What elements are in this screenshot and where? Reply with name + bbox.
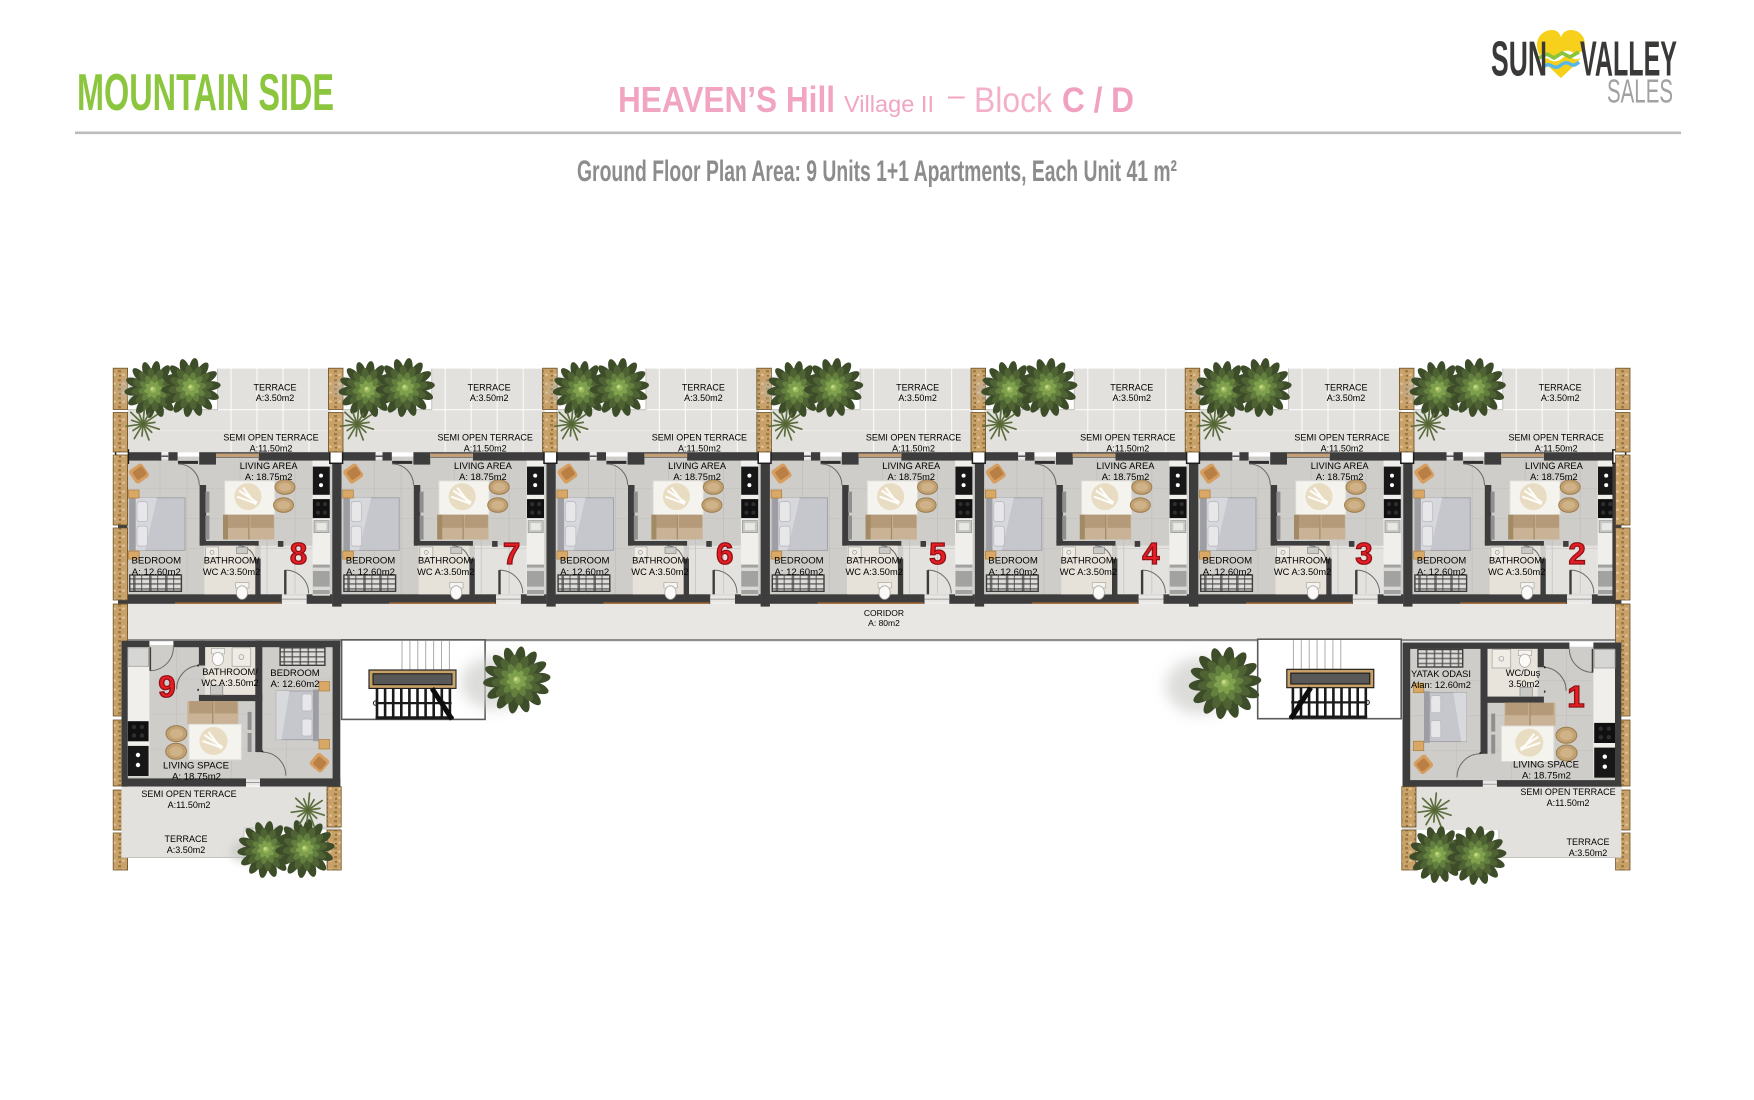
svg-text:–: – [948, 79, 965, 112]
svg-text:8: 8 [290, 536, 307, 571]
svg-text:1: 1 [1567, 679, 1584, 714]
svg-text:Village II: Village II [844, 91, 934, 117]
svg-text:Ground Floor Plan Area: 9 Unit: Ground Floor Plan Area: 9 Units 1+1 Apar… [577, 155, 1177, 188]
svg-text:SALES: SALES [1607, 73, 1673, 110]
svg-text:A:11.50m2: A:11.50m2 [1547, 798, 1590, 808]
svg-text:TERRACE: TERRACE [1566, 837, 1609, 847]
svg-text:SUN: SUN [1491, 33, 1547, 87]
svg-text:A:3.50m2: A:3.50m2 [1569, 848, 1608, 858]
svg-text:CORIDOR: CORIDOR [864, 608, 904, 618]
svg-text:YATAK ODASI: YATAK ODASI [1411, 669, 1471, 679]
svg-text:7: 7 [503, 536, 520, 571]
svg-text:LIVING SPACE: LIVING SPACE [163, 761, 229, 772]
svg-text:WC/Duş: WC/Duş [1506, 668, 1541, 678]
svg-text:A:11.50m2: A:11.50m2 [168, 800, 211, 810]
svg-text:MOUNTAIN SIDE: MOUNTAIN SIDE [77, 64, 334, 122]
svg-text:WC A:3.50m2: WC A:3.50m2 [201, 678, 258, 688]
svg-text:Alan: 12.60m2: Alan: 12.60m2 [1411, 680, 1471, 690]
svg-text:2: 2 [1568, 536, 1585, 571]
svg-text:A:3.50m2: A:3.50m2 [167, 845, 206, 855]
svg-text:A: 80m2: A: 80m2 [868, 618, 900, 628]
svg-text:SEMI OPEN TERRACE: SEMI OPEN TERRACE [141, 789, 236, 799]
svg-text:A: 18.75m2: A: 18.75m2 [172, 772, 221, 783]
svg-text:3.50m2: 3.50m2 [1508, 679, 1539, 689]
svg-text:SEMI OPEN TERRACE: SEMI OPEN TERRACE [1520, 787, 1615, 797]
svg-text:TERRACE: TERRACE [164, 834, 207, 844]
svg-text:5: 5 [929, 536, 946, 571]
svg-text:4: 4 [1142, 536, 1160, 571]
svg-text:HEAVEN’S Hill: HEAVEN’S Hill [618, 79, 835, 120]
svg-text:6: 6 [716, 536, 733, 571]
svg-text:BATHROOM/: BATHROOM/ [202, 667, 258, 677]
svg-text:BEDROOM: BEDROOM [270, 668, 320, 679]
svg-text:A: 12.60m2: A: 12.60m2 [270, 679, 319, 690]
svg-text:Block: Block [974, 81, 1052, 120]
svg-text:9: 9 [158, 669, 175, 704]
svg-text:C / D: C / D [1062, 81, 1134, 120]
svg-text:3: 3 [1355, 536, 1372, 571]
svg-text:LIVING SPACE: LIVING SPACE [1513, 760, 1579, 771]
svg-text:A: 18.75m2: A: 18.75m2 [1522, 771, 1571, 782]
